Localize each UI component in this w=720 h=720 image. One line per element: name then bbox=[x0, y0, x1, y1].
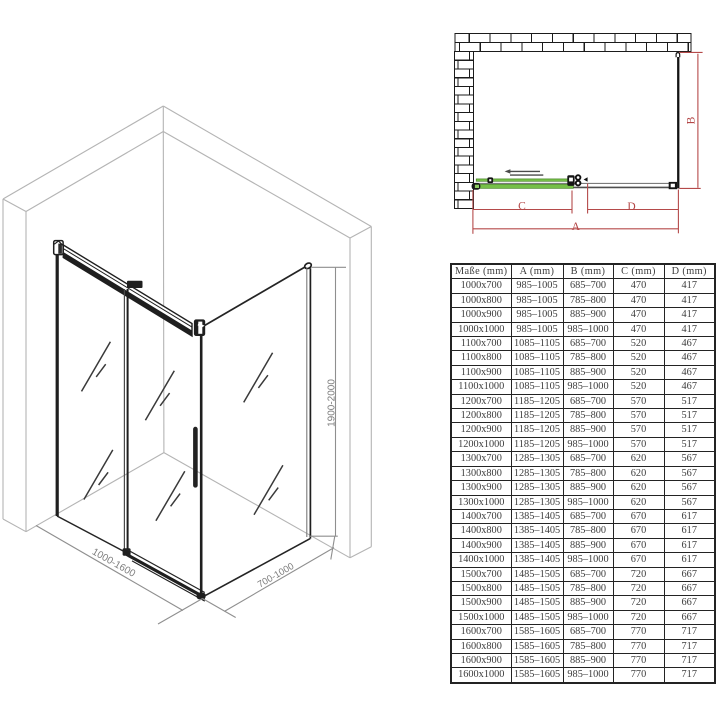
svg-text:C: C bbox=[518, 201, 526, 213]
svg-text:1900-2000: 1900-2000 bbox=[327, 379, 338, 427]
svg-text:A: A bbox=[572, 221, 581, 233]
svg-text:B: B bbox=[686, 116, 698, 124]
svg-text:D: D bbox=[627, 201, 635, 213]
